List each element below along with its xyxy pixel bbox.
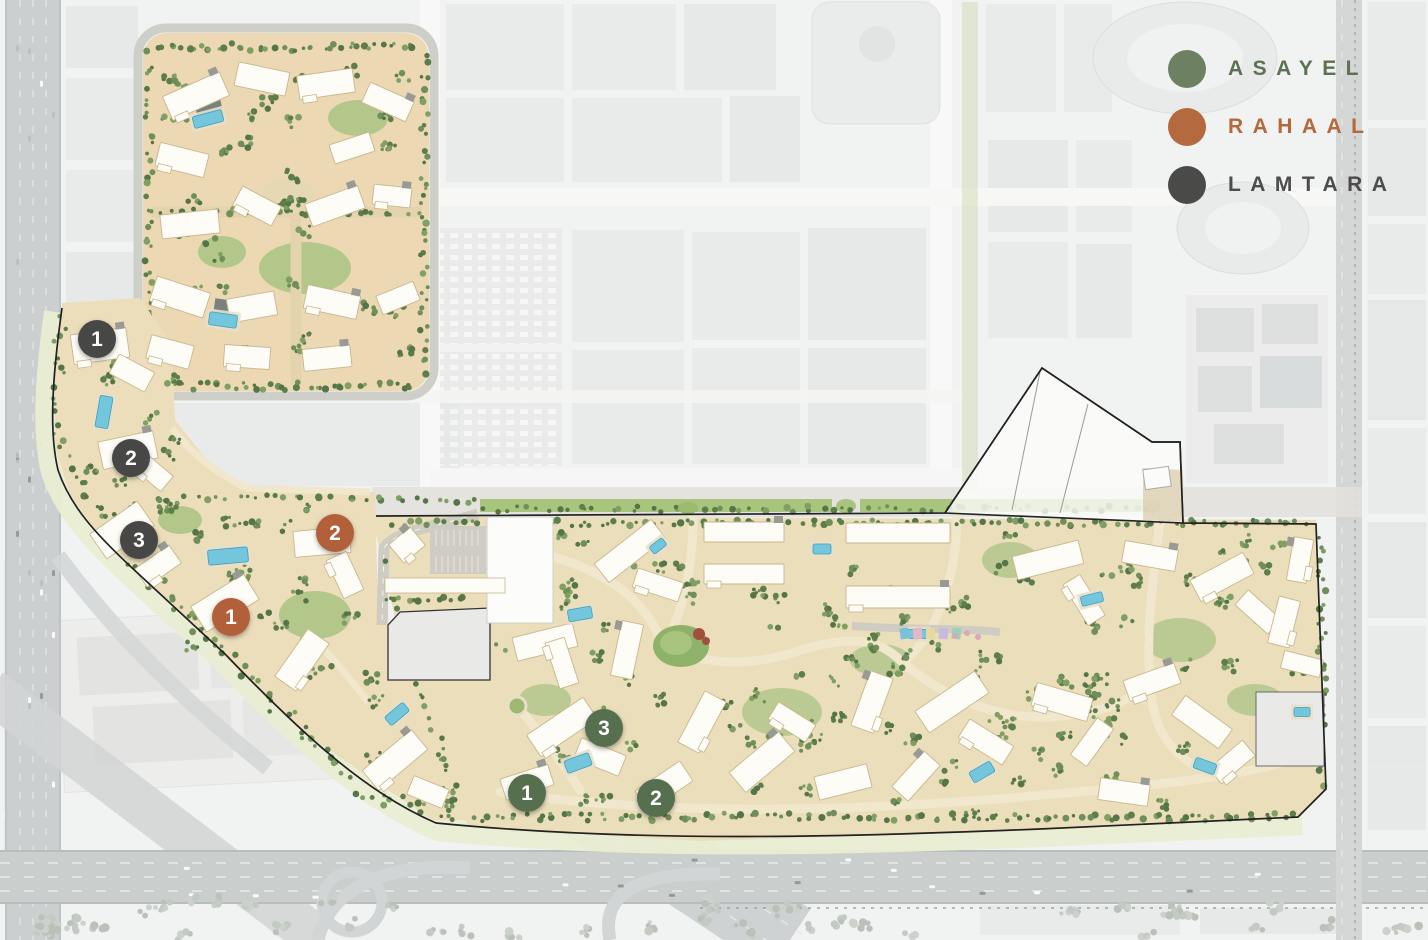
- marker-number: 1: [521, 783, 533, 804]
- masterplan-canvas: 12321312 ASAYEL RAHAAL LAMTARA: [0, 0, 1428, 940]
- phase1-community: [138, 28, 434, 396]
- marker-number: 2: [329, 523, 341, 544]
- legend-swatch-asayel-icon: [1168, 50, 1206, 88]
- map-marker-rahaal-2[interactable]: 2: [316, 514, 354, 552]
- legend: ASAYEL RAHAAL LAMTARA: [1168, 50, 1396, 224]
- legend-swatch-lamtara-icon: [1168, 166, 1206, 204]
- parking-lot: [430, 526, 486, 574]
- marker-number: 3: [598, 718, 610, 739]
- marker-number: 2: [650, 788, 662, 809]
- plot-southeast: [1256, 692, 1324, 766]
- legend-label: LAMTARA: [1228, 173, 1396, 197]
- map-marker-rahaal-1[interactable]: 1: [212, 598, 250, 636]
- legend-label: ASAYEL: [1228, 57, 1368, 81]
- map-marker-asayel-1[interactable]: 1: [508, 774, 546, 812]
- map-marker-lamtara-3[interactable]: 3: [120, 521, 158, 559]
- map-marker-asayel-2[interactable]: 2: [637, 779, 675, 817]
- marker-number: 1: [91, 329, 103, 350]
- plot-west: [388, 608, 490, 680]
- marker-number: 1: [225, 607, 237, 628]
- legend-label: RAHAAL: [1228, 115, 1373, 139]
- map-marker-lamtara-2[interactable]: 2: [112, 439, 150, 477]
- map-marker-lamtara-1[interactable]: 1: [78, 320, 116, 358]
- map-marker-asayel-3[interactable]: 3: [585, 709, 623, 747]
- legend-item-lamtara: LAMTARA: [1168, 166, 1396, 204]
- legend-item-rahaal: RAHAAL: [1168, 108, 1396, 146]
- marker-number: 2: [125, 448, 137, 469]
- boulevard-north: [372, 487, 1362, 517]
- legend-swatch-rahaal-icon: [1168, 108, 1206, 146]
- legend-item-asayel: ASAYEL: [1168, 50, 1396, 88]
- marker-number: 3: [133, 530, 145, 551]
- plot-bigbox: [487, 517, 553, 623]
